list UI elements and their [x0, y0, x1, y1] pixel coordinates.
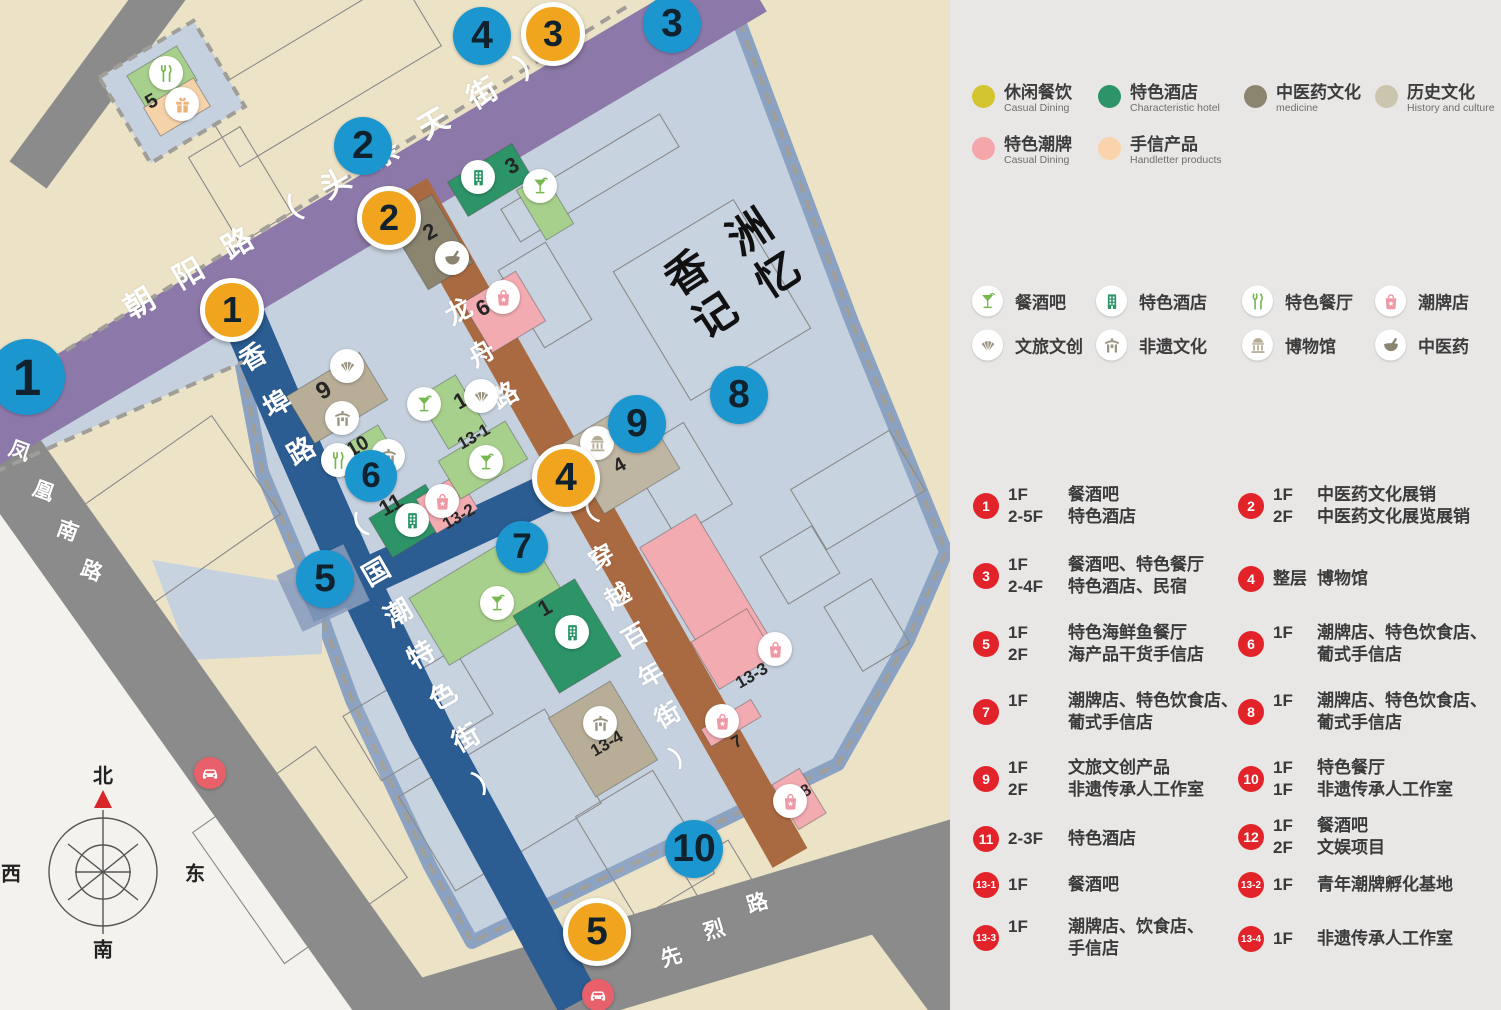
bag-icon	[773, 784, 807, 818]
plan-entry-text: 1F特色餐厅1F非遗传承人工作室	[1273, 757, 1453, 801]
plan-entry-text: 1F非遗传承人工作室	[1273, 928, 1453, 950]
museum-icon	[1242, 330, 1273, 361]
restaurant-icon	[1242, 286, 1273, 317]
legend-panel: 图注: 业态规划: 休闲餐饮 Casual Dining 特色酒店 Charac…	[950, 0, 1501, 1010]
compass-north: 北	[93, 760, 113, 789]
legend-icon-item: 特色酒店	[1096, 286, 1207, 317]
map-marker-blue-5: 5	[296, 550, 354, 608]
plan-entry-10: 10 1F特色餐厅1F非遗传承人工作室	[1238, 757, 1453, 801]
category-label-zh: 中医药文化	[1276, 83, 1361, 102]
plan-entry-text: 1F潮牌店、饮食店、手信店	[1008, 916, 1204, 960]
category-color-dot	[1244, 85, 1267, 108]
compass-south: 南	[93, 934, 113, 963]
legend-icon-item: 餐酒吧	[972, 286, 1066, 317]
map-marker-orange-4: 4	[532, 444, 600, 512]
category-label-zh: 特色酒店	[1130, 83, 1220, 102]
plan-entry-text: 1F潮牌店、特色饮食店、葡式手信店	[1273, 690, 1487, 734]
restaurant-icon	[149, 56, 183, 90]
legend-category: 休闲餐饮 Casual Dining	[972, 83, 1072, 115]
category-label-en: History and culture	[1407, 102, 1495, 115]
plan-entry-7: 7 1F潮牌店、特色饮食店、葡式手信店	[973, 690, 1238, 734]
cocktail-icon	[972, 286, 1003, 317]
legend-icon-label: 非遗文化	[1139, 333, 1207, 358]
plan-badge-11: 11	[973, 826, 999, 852]
plan-badge-3: 3	[973, 563, 999, 589]
plan-entry-text: 1F潮牌店、特色饮食店、葡式手信店	[1273, 622, 1487, 666]
compass-east: 东	[185, 858, 205, 887]
gift-icon	[165, 87, 199, 121]
category-color-dot	[1098, 85, 1121, 108]
hotel-icon	[555, 615, 589, 649]
bag-icon	[1375, 286, 1406, 317]
plan-entry-1: 1 1F餐酒吧2-5F特色酒店	[973, 484, 1136, 528]
plan-entry-text: 1F特色海鲜鱼餐厅2F海产品干货手信店	[1008, 622, 1204, 666]
plan-badge-4: 4	[1238, 566, 1264, 592]
category-label-en: Characteristic hotel	[1130, 102, 1220, 115]
map-marker-orange-5: 5	[563, 898, 631, 966]
legend-icon-item: 潮牌店	[1375, 286, 1469, 317]
map-marker-orange-3: 3	[521, 2, 585, 66]
plan-entry-text: 1F餐酒吧、特色餐厅2-4F特色酒店、民宿	[1008, 554, 1204, 598]
legend-icon-label: 潮牌店	[1418, 289, 1469, 314]
plan-entry-13-4: 13-4 1F非遗传承人工作室	[1238, 926, 1453, 952]
plan-entry-text: 1F中医药文化展销2F中医药文化展览展销	[1273, 484, 1470, 528]
plan-badge-13-2: 13-2	[1238, 872, 1264, 898]
plan-entry-text: 1F潮牌店、特色饮食店、葡式手信店	[1008, 690, 1238, 734]
category-color-dot	[1098, 137, 1121, 160]
plan-entry-9: 9 1F文旅文创产品2F非遗传承人工作室	[973, 757, 1204, 801]
map-marker-orange-2: 2	[357, 186, 421, 250]
plan-entry-text: 1F餐酒吧2-5F特色酒店	[1008, 484, 1136, 528]
mortar-icon	[435, 241, 469, 275]
temple-icon	[1096, 330, 1127, 361]
compass-west: 西	[1, 858, 21, 887]
legend-category: 历史文化 History and culture	[1375, 83, 1495, 115]
category-color-dot	[972, 137, 995, 160]
plan-entry-text: 1F餐酒吧2F文娱项目	[1273, 815, 1385, 859]
hotel-icon	[1096, 286, 1127, 317]
map-marker-blue-6: 6	[345, 450, 397, 502]
plan-entry-text: 1F文旅文创产品2F非遗传承人工作室	[1008, 757, 1204, 801]
category-label-zh: 历史文化	[1407, 83, 1495, 102]
legend-icon-item: 中医药	[1375, 330, 1469, 361]
car-icon	[582, 979, 614, 1010]
map: 朝阳路（头条天街）香埠路（国潮特色街）龙舟路（穿越百年街）凤凰南路先烈路香 洲记…	[0, 0, 950, 1010]
plan-badge-9: 9	[973, 766, 999, 792]
legend-icon-item: 非遗文化	[1096, 330, 1207, 361]
map-marker-blue-2: 2	[334, 117, 392, 175]
legend-icon-label: 特色餐厅	[1285, 289, 1353, 314]
plan-entry-8: 8 1F潮牌店、特色饮食店、葡式手信店	[1238, 690, 1487, 734]
category-color-dot	[972, 85, 995, 108]
plan-entry-13-1: 13-1 1F餐酒吧	[973, 872, 1119, 898]
legend-icon-label: 特色酒店	[1139, 289, 1207, 314]
plan-entry-text: 整层博物馆	[1273, 568, 1368, 590]
bag-icon	[758, 632, 792, 666]
plan-badge-8: 8	[1238, 699, 1264, 725]
plan-entry-text: 2-3F特色酒店	[1008, 828, 1136, 850]
category-label-zh: 特色潮牌	[1004, 135, 1072, 154]
map-marker-blue-9: 9	[608, 395, 666, 453]
plan-badge-7: 7	[973, 699, 999, 725]
plan-badge-13-3: 13-3	[973, 925, 999, 951]
map-marker-blue-10: 10	[665, 820, 723, 878]
temple-icon	[583, 706, 617, 740]
cocktail-icon	[523, 169, 557, 203]
hotel-icon	[395, 503, 429, 537]
legend-icon-label: 餐酒吧	[1015, 289, 1066, 314]
plan-badge-10: 10	[1238, 766, 1264, 792]
poster: 朝阳路（头条天街）香埠路（国潮特色街）龙舟路（穿越百年街）凤凰南路先烈路香 洲记…	[0, 0, 1501, 1010]
map-marker-blue-8: 8	[710, 366, 768, 424]
plan-entry-13-2: 13-2 1F青年潮牌孵化基地	[1238, 872, 1453, 898]
legend-icon-item: 博物馆	[1242, 330, 1336, 361]
legend-icon-label: 文旅文创	[1015, 333, 1083, 358]
plan-entry-11: 11 2-3F特色酒店	[973, 826, 1136, 852]
bag-icon	[705, 704, 739, 738]
car-icon	[194, 757, 226, 789]
category-label-zh: 休闲餐饮	[1004, 83, 1072, 102]
compass-rose: 北 南 西 东	[23, 782, 183, 962]
plan-badge-13-4: 13-4	[1238, 926, 1264, 952]
plan-entry-3: 3 1F餐酒吧、特色餐厅2-4F特色酒店、民宿	[973, 554, 1204, 598]
cocktail-icon	[469, 445, 503, 479]
category-color-dot	[1375, 85, 1398, 108]
category-label-en: medicine	[1276, 102, 1361, 115]
plan-entry-6: 6 1F潮牌店、特色饮食店、葡式手信店	[1238, 622, 1487, 666]
hotel-icon	[461, 160, 495, 194]
map-marker-blue-4: 4	[453, 7, 511, 65]
legend-icon-item: 特色餐厅	[1242, 286, 1353, 317]
legend-icon-label: 博物馆	[1285, 333, 1336, 358]
bag-icon	[486, 280, 520, 314]
map-marker-orange-1: 1	[200, 278, 264, 342]
plan-badge-5: 5	[973, 631, 999, 657]
fan-icon	[972, 330, 1003, 361]
plan-badge-1: 1	[973, 493, 999, 519]
mortar-icon	[1375, 330, 1406, 361]
category-label-en: Casual Dining	[1004, 102, 1072, 115]
cocktail-icon	[407, 387, 441, 421]
legend-icon-item: 文旅文创	[972, 330, 1083, 361]
plan-badge-2: 2	[1238, 493, 1264, 519]
plan-entry-text: 1F青年潮牌孵化基地	[1273, 874, 1453, 896]
legend-category: 特色潮牌 Casual Dining	[972, 135, 1072, 167]
plan-entry-5: 5 1F特色海鲜鱼餐厅2F海产品干货手信店	[973, 622, 1204, 666]
plan-entry-4: 4 整层博物馆	[1238, 566, 1368, 592]
map-marker-blue-7: 7	[496, 521, 548, 573]
plan-entry-13-3: 13-3 1F潮牌店、饮食店、手信店	[973, 916, 1204, 960]
plan-badge-6: 6	[1238, 631, 1264, 657]
plan-badge-13-1: 13-1	[973, 872, 999, 898]
plan-entry-2: 2 1F中医药文化展销2F中医药文化展览展销	[1238, 484, 1470, 528]
legend-category: 特色酒店 Characteristic hotel	[1098, 83, 1220, 115]
legend-icon-label: 中医药	[1418, 333, 1469, 358]
fan-icon	[464, 379, 498, 413]
category-label-en: Casual Dining	[1004, 154, 1072, 167]
plan-badge-12: 12	[1238, 824, 1264, 850]
cocktail-icon	[480, 586, 514, 620]
category-label-zh: 手信产品	[1130, 135, 1222, 154]
bag-icon	[425, 484, 459, 518]
plan-entry-text: 1F餐酒吧	[1008, 874, 1119, 896]
fan-icon	[330, 349, 364, 383]
legend-category: 中医药文化 medicine	[1244, 83, 1361, 115]
category-label-en: Handletter products	[1130, 154, 1222, 167]
legend-category: 手信产品 Handletter products	[1098, 135, 1222, 167]
plan-entry-12: 12 1F餐酒吧2F文娱项目	[1238, 815, 1385, 859]
temple-icon	[325, 401, 359, 435]
